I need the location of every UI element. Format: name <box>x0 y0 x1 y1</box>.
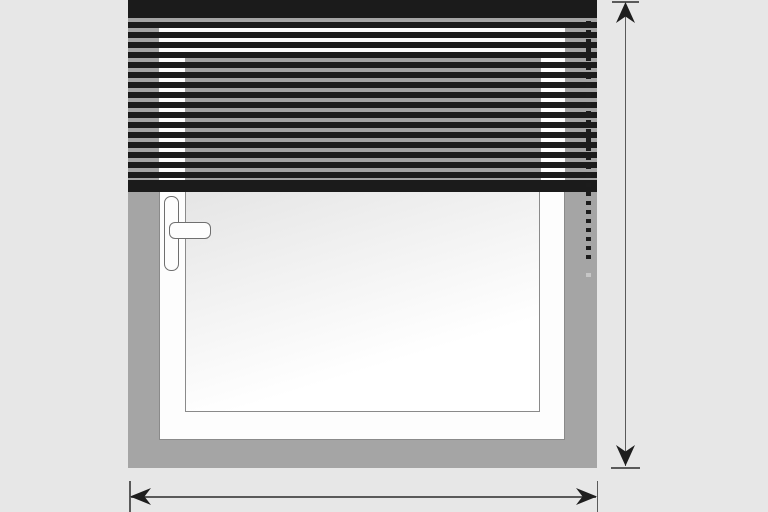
blind-slats <box>128 18 597 180</box>
diagram-canvas <box>0 0 768 512</box>
venetian-blind <box>128 0 597 192</box>
blind-bottom-rail <box>128 180 597 192</box>
height-dimension-line <box>625 3 627 466</box>
blind-control-chain <box>586 21 591 264</box>
blind-control-chain-end <box>586 273 591 277</box>
height-dimension-tick-bottom <box>611 467 640 469</box>
window-handle-icon <box>169 222 211 239</box>
blind-headrail <box>128 0 597 18</box>
arrowhead-right-icon <box>575 488 597 505</box>
arrowhead-up-icon <box>615 2 636 23</box>
width-dimension-line <box>130 496 596 498</box>
arrowhead-down-icon <box>615 444 636 466</box>
arrowhead-left-icon <box>130 488 152 505</box>
